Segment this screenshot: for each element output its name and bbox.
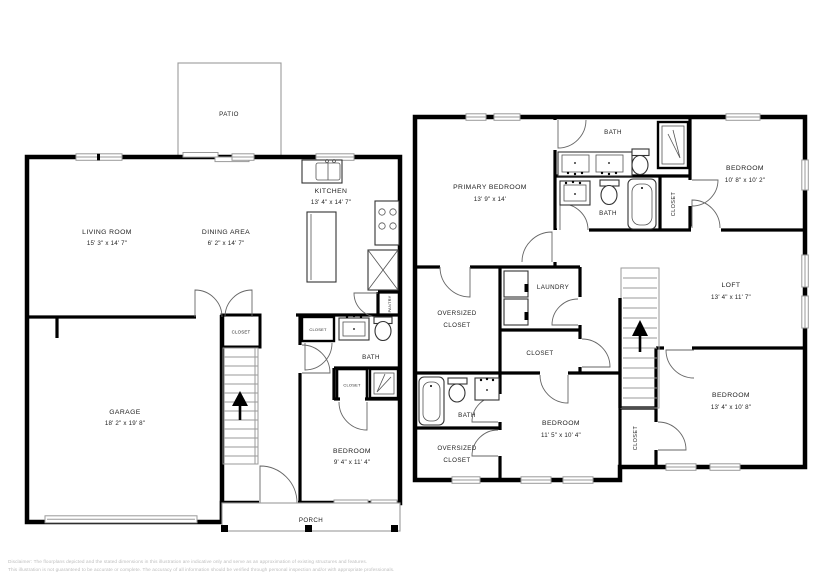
kitchen-dims: 13' 4" x 14' 7" [311,199,351,206]
floorplan-drawing: PATIO LIVING ROOM 15' 3" x 14' 7" DINING… [0,0,831,588]
kitchen-fixtures [302,160,399,291]
porch-post [305,525,312,532]
bedroom1-label: BEDROOM [333,448,371,455]
disclaimer: Disclaimer: The floorplans depicted and … [8,559,394,572]
floor2-plan: PRIMARY BEDROOM 13' 9" x 14' BATH BATH C… [415,114,808,484]
primary-bedroom-label: PRIMARY BEDROOM [453,184,527,191]
bath1-label: BATH [362,354,380,361]
hall-closet-label: CLOSET [309,327,327,332]
living-room-dims: 15' 3" x 14' 7" [87,240,127,247]
bedroom2-label: BEDROOM [726,165,764,172]
stove [375,201,399,245]
loft-dims: 13' 4" x 11' 7" [711,294,751,301]
bedroom1-dims: 9' 4" x 11' 4" [334,459,370,466]
bath-sink [475,378,499,400]
garage-dims: 18' 2" x 19' 8" [105,420,145,427]
oversized-closet-upper-line1: OVERSIZED [437,310,476,317]
pantry-label: PANTRY [387,295,392,312]
floor1-stairs [223,348,258,464]
disclaimer-line2: This illustration is not guaranteed to b… [8,567,394,572]
toilet-bowl [449,384,465,402]
washer [504,271,528,297]
floorplan-page: PATIO LIVING ROOM 15' 3" x 14' 7" DINING… [0,0,831,588]
toilet-bowl [632,156,648,175]
oversized-closet-lower-line1: OVERSIZED [437,445,476,452]
oversized-closet-lower-line2: CLOSET [443,457,470,464]
bedroom4-closet-label: CLOSET [633,426,639,451]
toilet-bowl [375,322,391,341]
floor2-stairs [620,268,659,408]
lower-bath-label: BATH [599,210,617,217]
shower [658,122,688,168]
hall-bath-label: BATH [458,412,476,419]
patio-label: PATIO [219,111,239,118]
floor1-plan: PATIO LIVING ROOM 15' 3" x 14' 7" DINING… [27,63,400,532]
loft-label: LOFT [722,282,741,289]
porch-post [391,525,398,532]
laundry-label: LAUNDRY [537,284,569,291]
laundry-machines [504,271,529,325]
porch-post [221,525,228,532]
kitchen-label: KITCHEN [315,188,348,195]
patio-slider-door [183,153,218,158]
bedroom4-dims: 13' 4" x 10' 8" [711,404,751,411]
primary-bedroom-dims: 13' 9" x 14' [474,196,506,203]
dining-area-dims: 6' 2" x 14' 7" [208,240,245,247]
toilet-bowl [601,186,617,205]
dining-area-label: DINING AREA [202,229,250,236]
living-room-label: LIVING ROOM [82,229,132,236]
oversized-closet-upper-line2: CLOSET [443,322,470,329]
disclaimer-line1: Disclaimer: The floorplans depicted and … [8,559,367,564]
bedroom3-dims: 11' 5" x 10' 4" [541,432,581,439]
bath-closet-label: CLOSET [343,383,361,388]
dryer [504,299,528,325]
bedroom2-dims: 10' 8" x 10' 2" [725,177,765,184]
patio-outline [178,63,281,157]
bedroom4-label: BEDROOM [712,392,750,399]
toilet-tank [448,378,467,384]
stair-closet-label: CLOSET [232,330,251,335]
toilet-tank [632,149,649,156]
bath-closet-label: CLOSET [671,192,677,217]
porch-label: PORCH [299,517,323,524]
garage-label: GARAGE [109,409,141,416]
upper-bath-fixtures [558,122,688,176]
kitchen-counter [302,160,342,183]
upper-bath-label: BATH [604,129,622,136]
lower-bath-fixtures [560,179,656,229]
hall-closet-label: CLOSET [526,350,553,357]
bedroom3-label: BEDROOM [542,420,580,427]
